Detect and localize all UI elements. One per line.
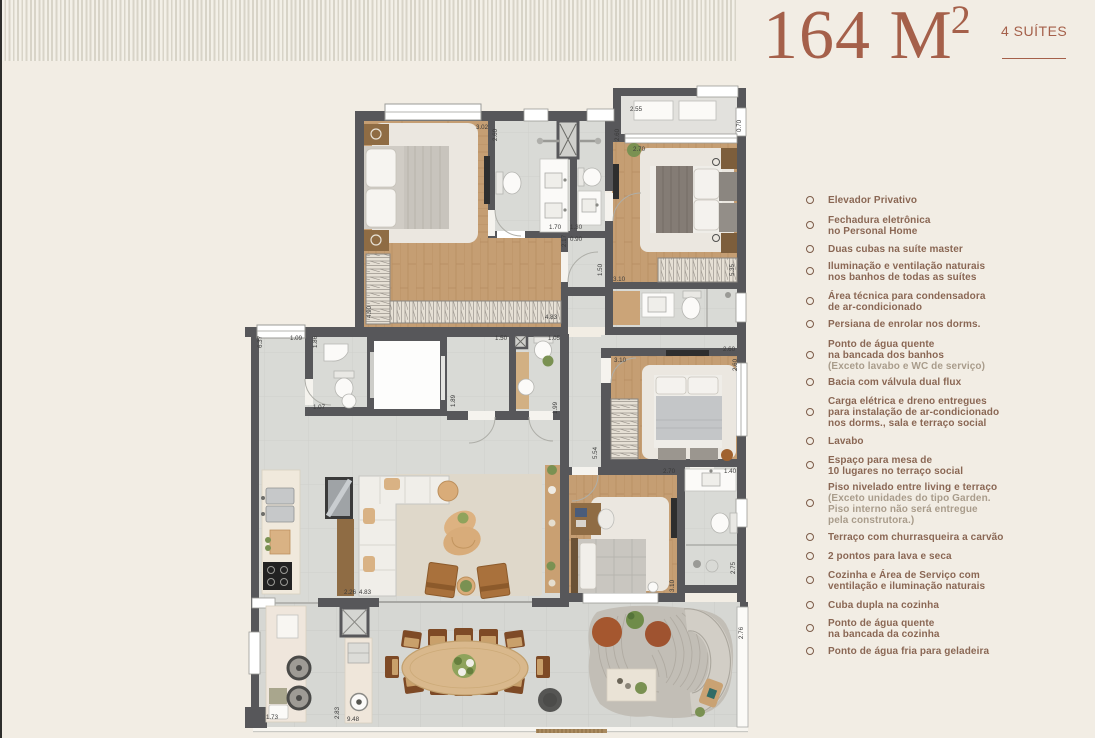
svg-text:2.60: 2.60 [614,128,621,141]
svg-text:5.35: 5.35 [729,263,736,276]
svg-text:3.10: 3.10 [614,357,627,364]
svg-text:1.40: 1.40 [724,468,737,475]
svg-text:2.60: 2.60 [723,346,736,353]
svg-text:4.90: 4.90 [366,305,373,318]
svg-text:1.70: 1.70 [549,224,562,231]
svg-text:2.83: 2.83 [334,706,341,719]
svg-text:6.37: 6.37 [257,335,264,348]
svg-text:1.30: 1.30 [570,224,583,231]
svg-text:3.10: 3.10 [669,579,676,592]
svg-text:0.90: 0.90 [570,236,583,243]
svg-text:2.55: 2.55 [630,106,643,113]
svg-text:1.09: 1.09 [290,335,303,342]
svg-text:9.48: 9.48 [347,716,360,723]
svg-text:2.26: 2.26 [344,589,357,596]
svg-text:4.83: 4.83 [359,589,372,596]
svg-text:1.73: 1.73 [266,714,279,721]
svg-text:1.86: 1.86 [312,335,319,348]
svg-text:2.70: 2.70 [663,468,676,475]
svg-text:2.60: 2.60 [732,358,739,371]
svg-text:1.05: 1.05 [548,335,561,342]
svg-text:2.60: 2.60 [492,128,499,141]
svg-text:1.50: 1.50 [597,263,604,276]
svg-text:1.99: 1.99 [552,401,559,414]
svg-text:2.70: 2.70 [633,146,646,153]
svg-text:4.83: 4.83 [545,314,558,321]
svg-text:1.07: 1.07 [313,404,326,411]
svg-text:3.02: 3.02 [476,124,489,131]
svg-text:3.10: 3.10 [613,276,626,283]
svg-text:1.89: 1.89 [450,394,457,407]
svg-text:0.70: 0.70 [736,119,743,132]
svg-text:5.54: 5.54 [592,446,599,459]
svg-text:2.17: 2.17 [561,234,568,247]
svg-text:2.76: 2.76 [738,626,745,639]
svg-text:2.75: 2.75 [730,561,737,574]
svg-text:1.50: 1.50 [495,335,508,342]
